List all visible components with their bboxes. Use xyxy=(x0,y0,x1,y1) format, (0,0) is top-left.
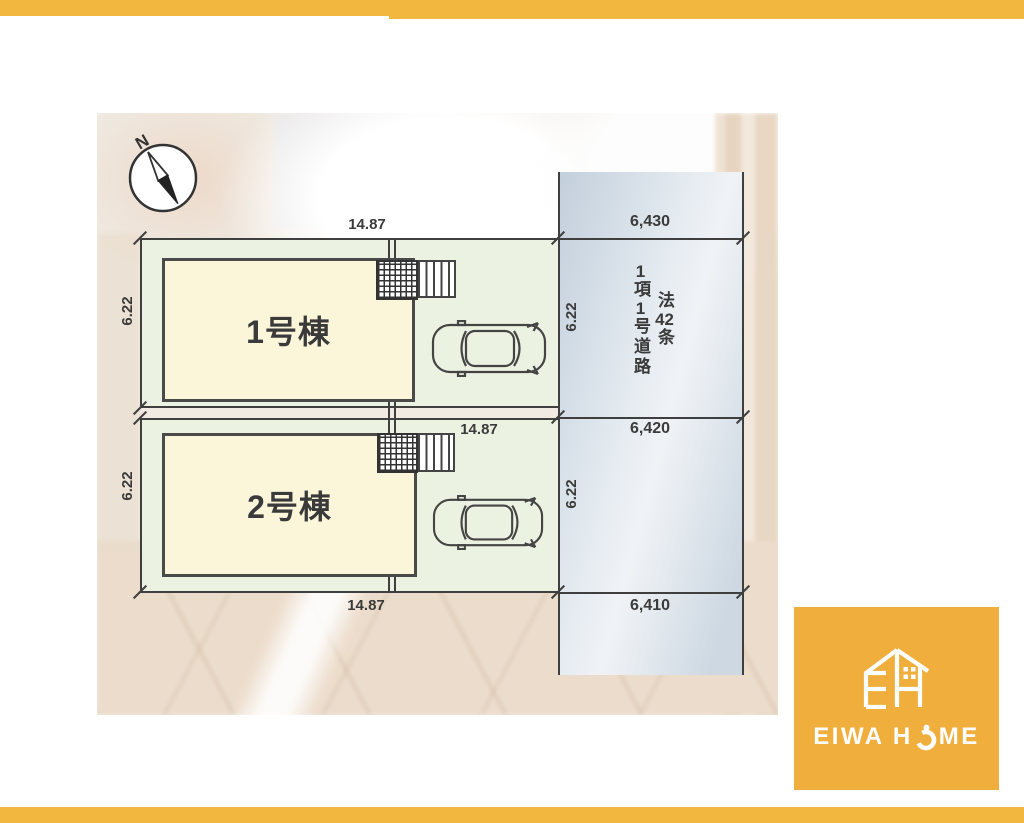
dim-road-width-3: 6,410 xyxy=(590,597,710,615)
dim-road2-depth: 6.22 xyxy=(563,464,581,524)
dim-frontage-bottom: 14.87 xyxy=(306,597,426,615)
entrance-hatch-2 xyxy=(377,433,418,473)
north-compass-icon: N xyxy=(125,126,201,230)
walkway-line xyxy=(394,238,396,258)
car-2-icon xyxy=(430,495,548,550)
entrance-steps-1 xyxy=(418,260,456,298)
bottom-accent-bar xyxy=(0,807,1024,823)
road-law-label: 法42条 xyxy=(653,291,675,348)
walkway-line xyxy=(388,577,390,593)
car-1-icon xyxy=(430,320,550,377)
dimension-line xyxy=(558,417,744,419)
dim-frontage-top: 14.87 xyxy=(307,216,427,234)
dim-road1-depth: 6.22 xyxy=(563,287,581,347)
logo-o-icon xyxy=(914,724,938,751)
dim-road-width-2: 6,420 xyxy=(590,420,710,438)
logo-wordmark: EIWA H ME xyxy=(813,723,979,751)
building-2-label: 2号棟 xyxy=(247,482,332,528)
building-1-label: 1号棟 xyxy=(246,307,331,353)
site-plan-area: 1号棟 2号棟 xyxy=(97,113,778,715)
dim-lot2-depth: 6.22 xyxy=(119,456,137,516)
logo-text-pre: EIWA H xyxy=(813,723,912,751)
dimension-line xyxy=(558,592,744,594)
logo-house-icon xyxy=(856,643,938,709)
walkway-line xyxy=(388,402,390,433)
entrance-hatch-1 xyxy=(376,260,418,300)
dimension-line xyxy=(558,238,744,240)
walkway-line xyxy=(394,577,396,593)
logo-text-post: ME xyxy=(939,723,980,751)
top-accent-bar-right xyxy=(389,0,1024,19)
dim-road-width-1: 6,430 xyxy=(590,213,710,231)
dim-frontage-mid: 14.87 xyxy=(419,421,539,439)
walkway-line xyxy=(394,402,396,433)
brand-logo: EIWA H ME xyxy=(794,607,999,790)
dim-lot1-depth: 6.22 xyxy=(119,281,137,341)
road-item-label: 1項1号道路 xyxy=(629,263,651,377)
walkway-line xyxy=(388,238,390,258)
